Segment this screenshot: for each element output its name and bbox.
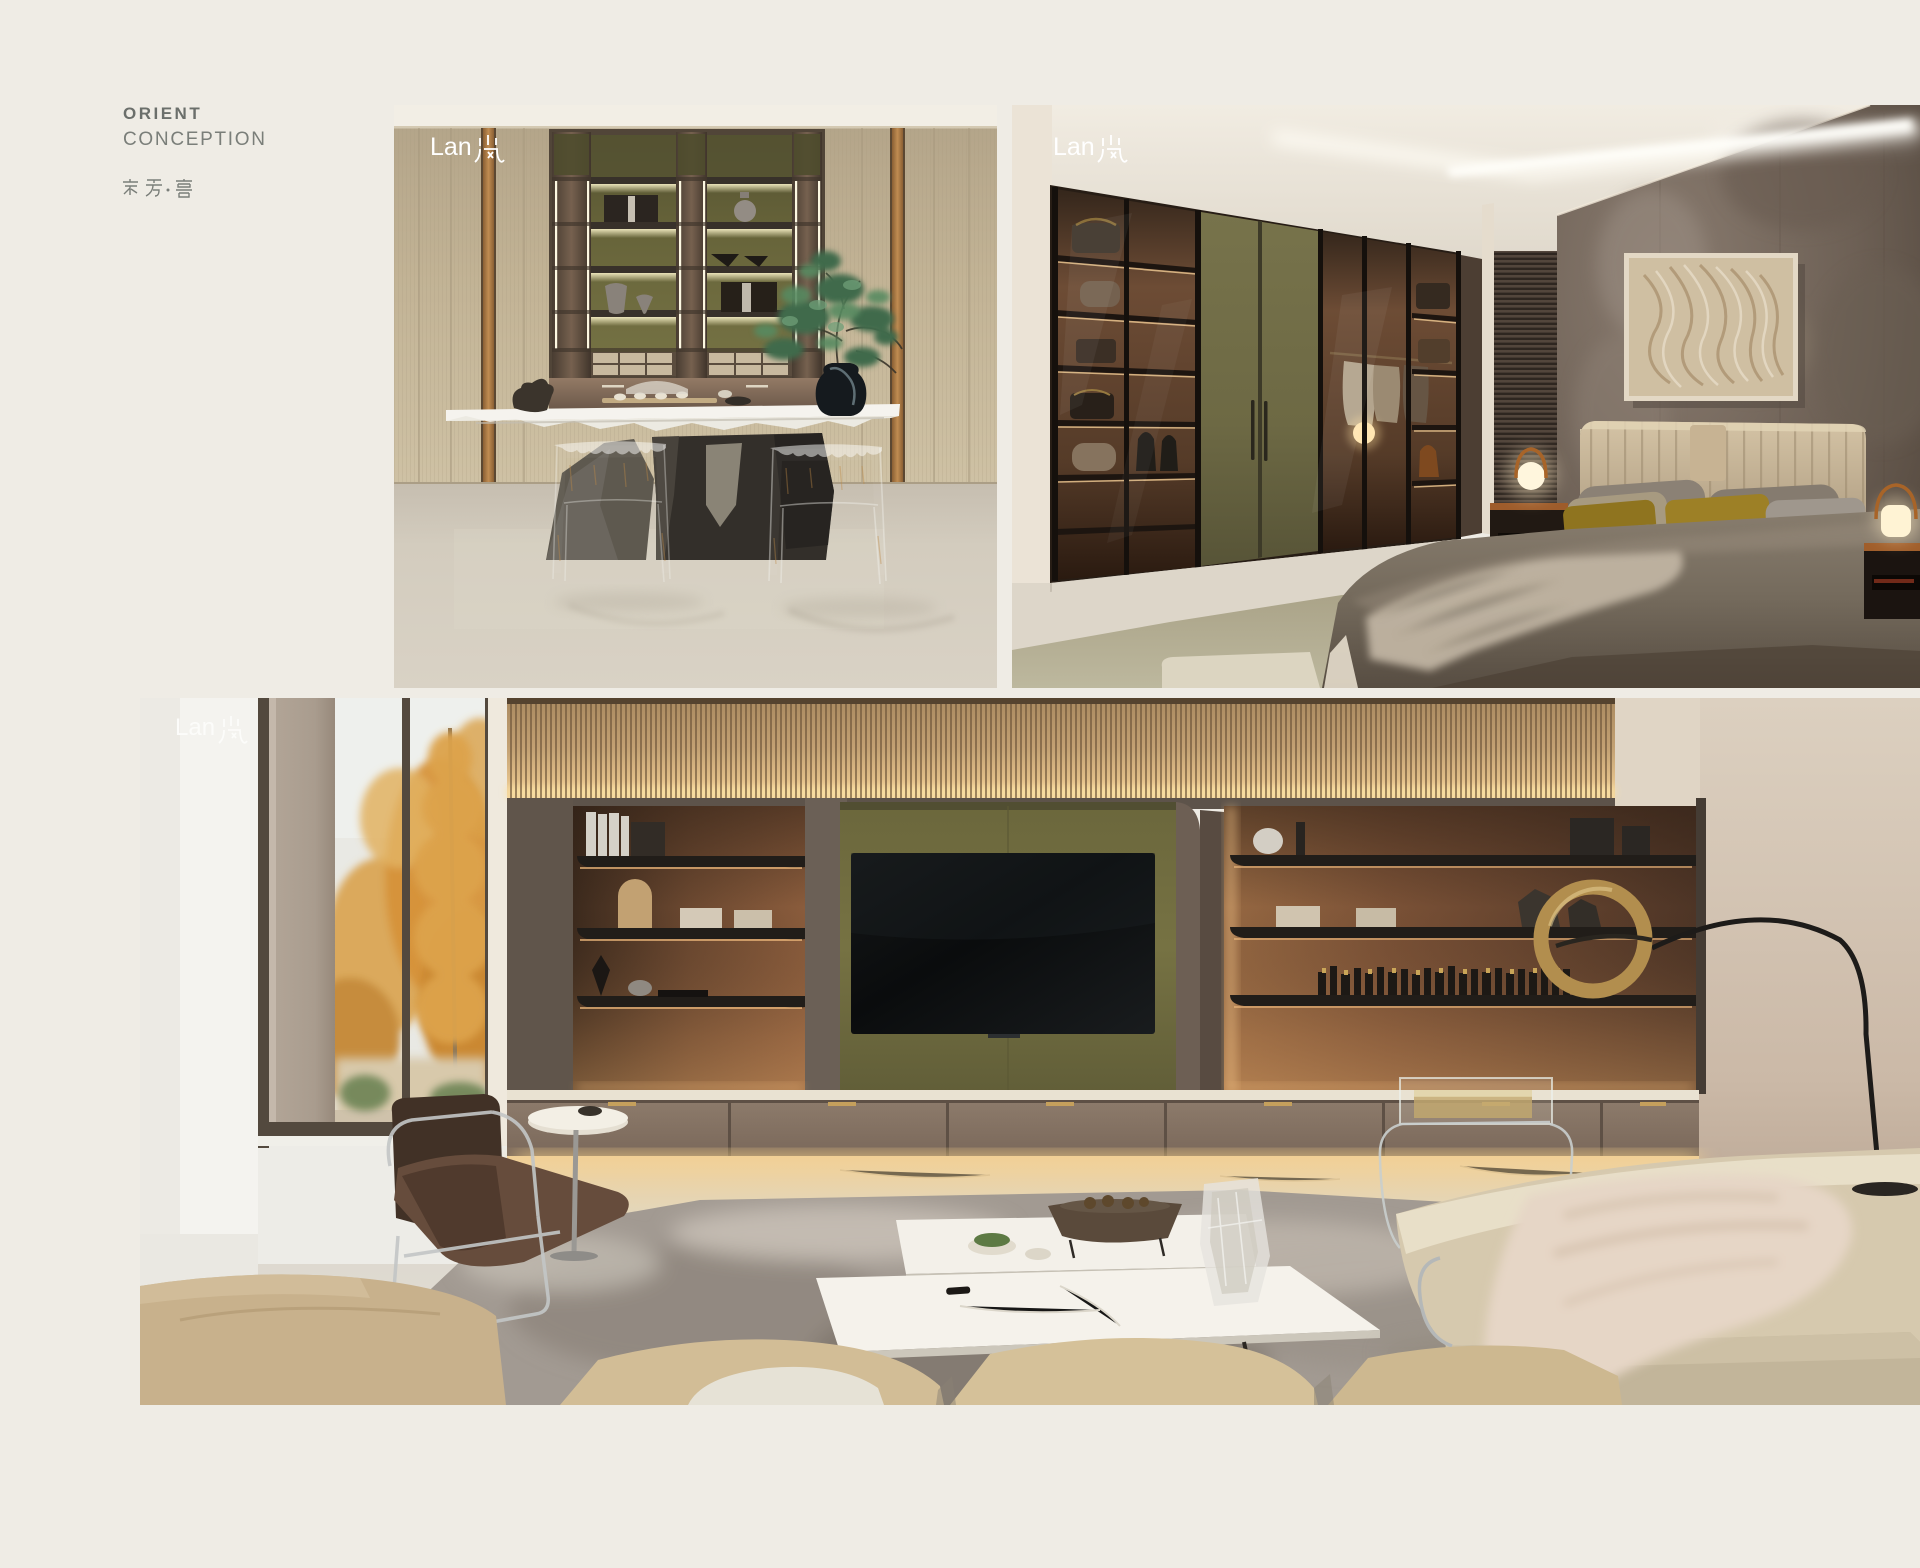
svg-text:Lan: Lan — [175, 714, 215, 741]
svg-text:Lan: Lan — [1053, 133, 1095, 161]
svg-text:Lan: Lan — [430, 133, 472, 161]
